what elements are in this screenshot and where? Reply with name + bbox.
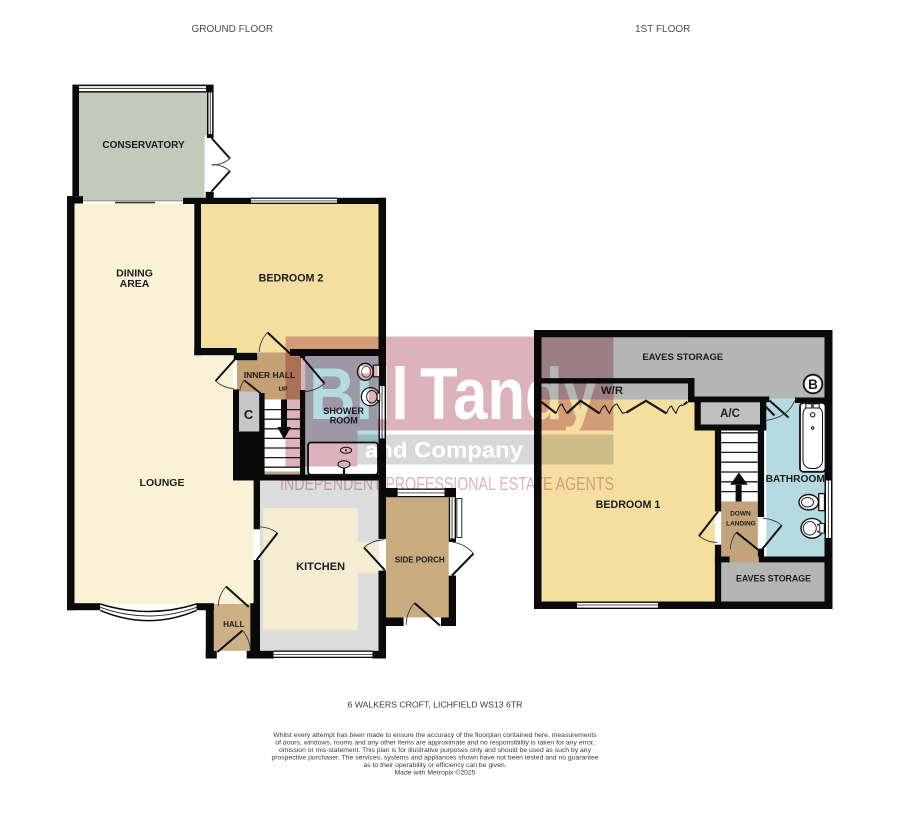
svg-text:A/C: A/C — [720, 408, 740, 420]
svg-text:LOUNGE: LOUNGE — [140, 477, 185, 489]
svg-text:EAVES STORAGE: EAVES STORAGE — [642, 352, 723, 363]
svg-text:6 WALKERS CROFT, LICHFIELD WS1: 6 WALKERS CROFT, LICHFIELD WS13 6TR — [348, 700, 523, 710]
svg-text:prospective purchaser. The ser: prospective purchaser. The services, sys… — [271, 755, 598, 762]
svg-text:KITCHEN: KITCHEN — [296, 561, 345, 573]
svg-text:DOWN: DOWN — [730, 510, 751, 517]
svg-text:as to their operability or eff: as to their operability or efficiency ca… — [363, 762, 506, 769]
svg-text:SIDE PORCH: SIDE PORCH — [395, 556, 445, 565]
svg-text:HALL: HALL — [223, 620, 244, 629]
svg-text:CONSERVATORY: CONSERVATORY — [102, 140, 185, 151]
svg-text:C: C — [244, 407, 254, 422]
svg-text:of doors, windows, rooms and a: of doors, windows, rooms and any other i… — [275, 740, 594, 747]
svg-text:INDEPENDENT PROFESSIONAL ESTAT: INDEPENDENT PROFESSIONAL ESTATE AGENTS — [280, 474, 614, 494]
svg-text:Bill: Bill — [309, 354, 409, 435]
svg-text:and Company: and Company — [365, 438, 524, 463]
svg-text:EAVES STORAGE: EAVES STORAGE — [736, 574, 811, 584]
svg-text:LANDING: LANDING — [726, 521, 756, 528]
svg-text:Tandy: Tandy — [420, 354, 597, 435]
svg-text:BEDROOM 1: BEDROOM 1 — [596, 499, 661, 511]
svg-text:omission or mis-statement. Thi: omission or mis-statement. This plan is … — [279, 747, 592, 754]
svg-text:B: B — [808, 377, 818, 392]
svg-text:BEDROOM 2: BEDROOM 2 — [259, 273, 324, 285]
svg-text:1ST FLOOR: 1ST FLOOR — [635, 24, 690, 35]
svg-text:Made with Metropix ©2025: Made with Metropix ©2025 — [395, 769, 476, 777]
svg-text:Whilst every attempt has been: Whilst every attempt has been made to en… — [273, 732, 597, 739]
svg-text:GROUND FLOOR: GROUND FLOOR — [191, 24, 273, 35]
svg-text:AREA: AREA — [120, 278, 150, 290]
svg-text:BATHROOM: BATHROOM — [766, 474, 825, 485]
